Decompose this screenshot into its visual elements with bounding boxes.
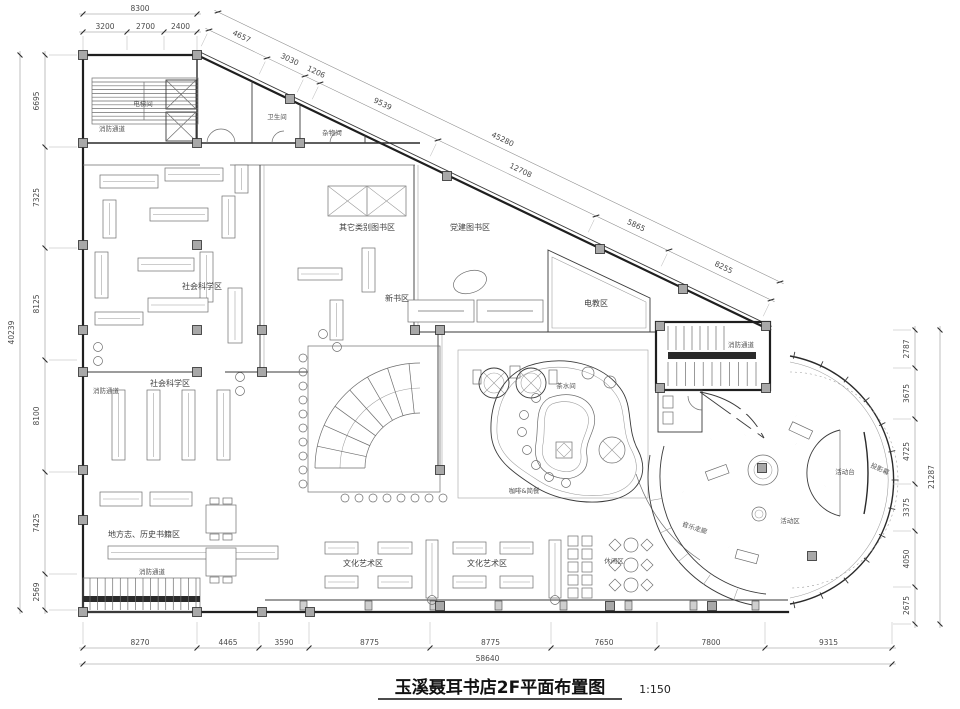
label-leisure: 休闲区: [604, 556, 624, 565]
central-stair: [308, 346, 440, 492]
dim-label: 8300: [130, 4, 149, 13]
title-block: 玉溪聂耳书店2F平面布置图 1:150: [378, 677, 671, 699]
dim-label: 8775: [481, 638, 500, 647]
stairs-bottom-left: [83, 578, 200, 612]
dim-label: 3590: [274, 638, 293, 647]
label-activity-area: 活动区: [780, 516, 800, 525]
label-local-history: 地方志、历史书籍区: [108, 529, 180, 539]
dim-label: 8100: [32, 406, 41, 425]
dim-label: 3675: [902, 384, 911, 403]
label-e-learning: 电教区: [584, 298, 608, 308]
dim-label: 7425: [32, 513, 41, 532]
dim-label: 4050: [902, 549, 911, 568]
drawing-scale: 1:150: [639, 683, 671, 696]
label-fire-escape-ml: 消防通道: [93, 386, 120, 395]
stairs-right: [656, 322, 770, 432]
dim-label: 7325: [32, 188, 41, 207]
dim-label: 4725: [902, 442, 911, 461]
cafe-area: [458, 350, 648, 502]
dim-label: 6695: [32, 91, 41, 110]
dim-label: 2675: [902, 596, 911, 615]
dim-label: 2700: [136, 22, 155, 31]
label-fire-escape-tl: 消防通道: [99, 124, 126, 133]
dim-label: 58640: [476, 654, 500, 663]
dim-label: 21287: [927, 465, 936, 489]
label-social-science-2: 社会科学区: [150, 378, 190, 388]
label-culture-art-1: 文化艺术区: [343, 558, 383, 568]
dim-label: 8255: [713, 259, 734, 275]
label-activity-stage: 活动台: [835, 467, 855, 476]
dim-label: 8125: [32, 294, 41, 313]
drawing-title: 玉溪聂耳书店2F平面布置图: [395, 677, 605, 698]
dim-label: 9315: [819, 638, 838, 647]
label-music-corridor: 音乐走廊: [681, 519, 709, 536]
label-toilet: 卫生间: [267, 112, 287, 121]
dim-label: 7800: [701, 638, 720, 647]
label-party-books: 党建图书区: [450, 222, 490, 232]
dim-label: 5865: [626, 217, 647, 233]
dim-label: 3375: [902, 498, 911, 517]
dim-label: 45280: [490, 130, 516, 149]
dim-label: 7650: [594, 638, 613, 647]
e-learning-room: [548, 250, 650, 332]
dim-label: 8775: [360, 638, 379, 647]
label-other-books: 其它类别图书区: [339, 222, 395, 232]
label-storage: 杂物间: [322, 128, 342, 137]
dim-label: 3200: [95, 22, 114, 31]
core-block: [83, 55, 420, 165]
dim-label: 4465: [218, 638, 237, 647]
dim-label: 2569: [32, 582, 41, 601]
label-elevator: 电梯间: [133, 99, 153, 108]
label-new-books: 新书区: [385, 293, 409, 303]
label-fire-escape-r: 消防通道: [728, 340, 755, 349]
dim-label: 2787: [902, 339, 911, 358]
dim-label: 40239: [7, 320, 16, 344]
label-projection-screen: 投影幕: [869, 461, 891, 478]
label-culture-art-2: 文化艺术区: [467, 558, 507, 568]
dim-label: 2400: [171, 22, 190, 31]
dim-label: 12708: [508, 161, 534, 180]
label-cafe: 咖啡&简餐: [508, 486, 540, 495]
floor-plan-canvas: 3200270024008300827044653590877587757650…: [0, 0, 960, 709]
dim-label: 8270: [130, 638, 149, 647]
label-fire-escape-bl: 消防通道: [139, 567, 166, 576]
label-social-science-1: 社会科学区: [182, 281, 222, 291]
label-pantry: 茶水间: [556, 381, 576, 390]
